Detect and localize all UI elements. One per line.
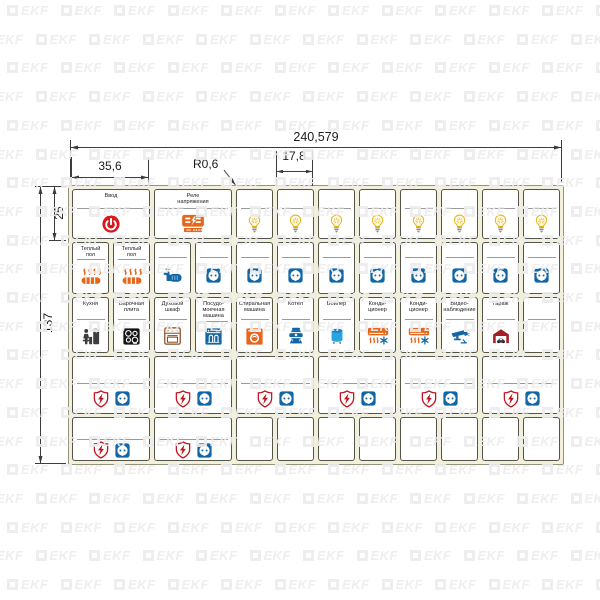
- dim-wide-label-width: 35,6: [85, 159, 135, 173]
- dim-narrow-label-width: 17,8: [269, 149, 319, 163]
- dimension-lines: [0, 0, 600, 600]
- drawing-canvas: 240,579 35,6 R0,6 17,8 25 137 ВводРеле н…: [0, 0, 600, 600]
- dim-corner-radius: R0,6: [193, 157, 218, 171]
- dim-total-width: 240,579: [276, 130, 356, 144]
- dim-row1-height: 25: [52, 200, 66, 226]
- dim-total-height: 137: [41, 308, 55, 338]
